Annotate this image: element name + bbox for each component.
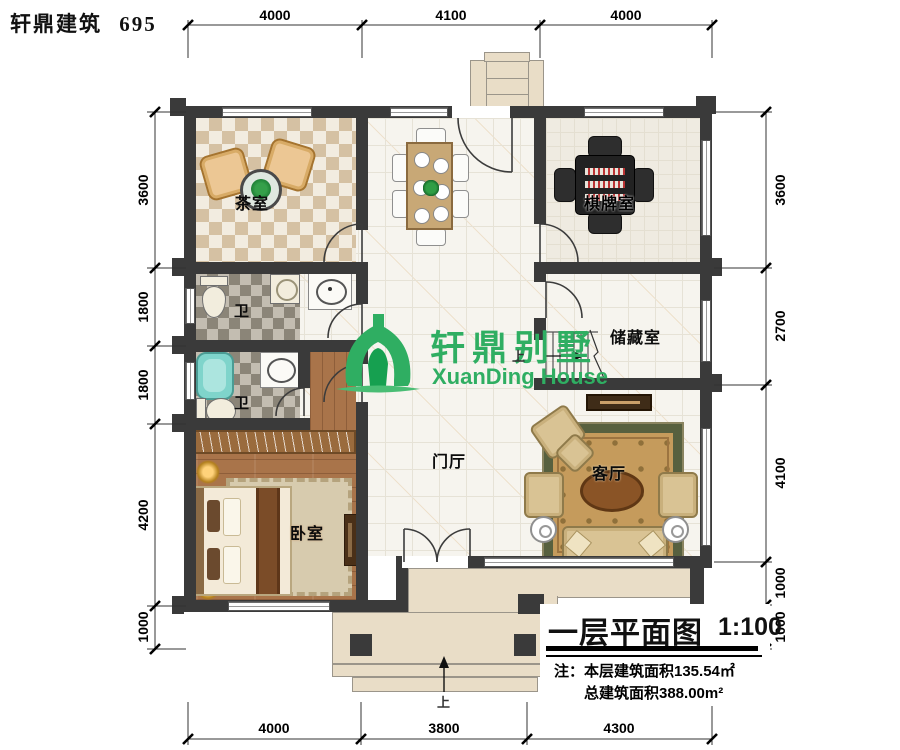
dim-bottom-3: 4300 — [589, 720, 649, 736]
title-rule-thick — [546, 646, 758, 651]
stair-up-label: 上 — [512, 346, 525, 365]
dim-right-2: 2700 — [772, 301, 788, 351]
dim-left-1: 3600 — [135, 165, 151, 215]
room-label-bath-lower: 卫 — [234, 392, 250, 413]
note-line-1: 注：本层建筑面积135.54㎡ — [554, 660, 735, 681]
dim-bottom-2: 3800 — [414, 720, 474, 736]
dim-top-3: 4000 — [596, 7, 656, 23]
dim-bottom-1: 4000 — [244, 720, 304, 736]
room-label-storage: 储藏室 — [610, 324, 661, 348]
room-label-living: 客厅 — [592, 460, 626, 484]
dim-top-2: 4100 — [421, 7, 481, 23]
title-block: 一层平面图 1:100 注：本层建筑面积135.54㎡ 总建筑面积388.00m… — [540, 604, 770, 706]
watermark: 轩鼎别墅 XuanDing House — [332, 312, 592, 397]
room-label-bedroom: 卧室 — [290, 520, 324, 544]
title-rule-thin — [546, 655, 762, 657]
dim-top-1: 4000 — [245, 7, 305, 23]
floor-plan-sheet: 轩鼎建筑 695 — [0, 0, 900, 750]
dim-right-4: 1000 — [772, 558, 788, 608]
room-label-chess: 棋牌室 — [584, 190, 635, 214]
dim-right-3: 4100 — [772, 448, 788, 498]
watermark-en: XuanDing House — [432, 364, 608, 390]
plan-scale: 1:100 — [718, 613, 782, 642]
room-label-bath-upper: 卫 — [234, 300, 250, 321]
room-label-hall: 门厅 — [432, 448, 466, 472]
room-label-tea: 茶室 — [235, 190, 269, 214]
xuanding-logo-icon — [332, 312, 424, 394]
dim-left-4: 4200 — [135, 490, 151, 540]
entry-up-label: 上 — [437, 692, 450, 711]
dim-left-5: 1000 — [135, 602, 151, 652]
dim-left-3: 1800 — [135, 360, 151, 410]
entry-arrow — [439, 656, 449, 692]
dim-left-2: 1800 — [135, 282, 151, 332]
note-line-2: 总建筑面积388.00m² — [584, 682, 723, 703]
dim-right-1: 3600 — [772, 165, 788, 215]
